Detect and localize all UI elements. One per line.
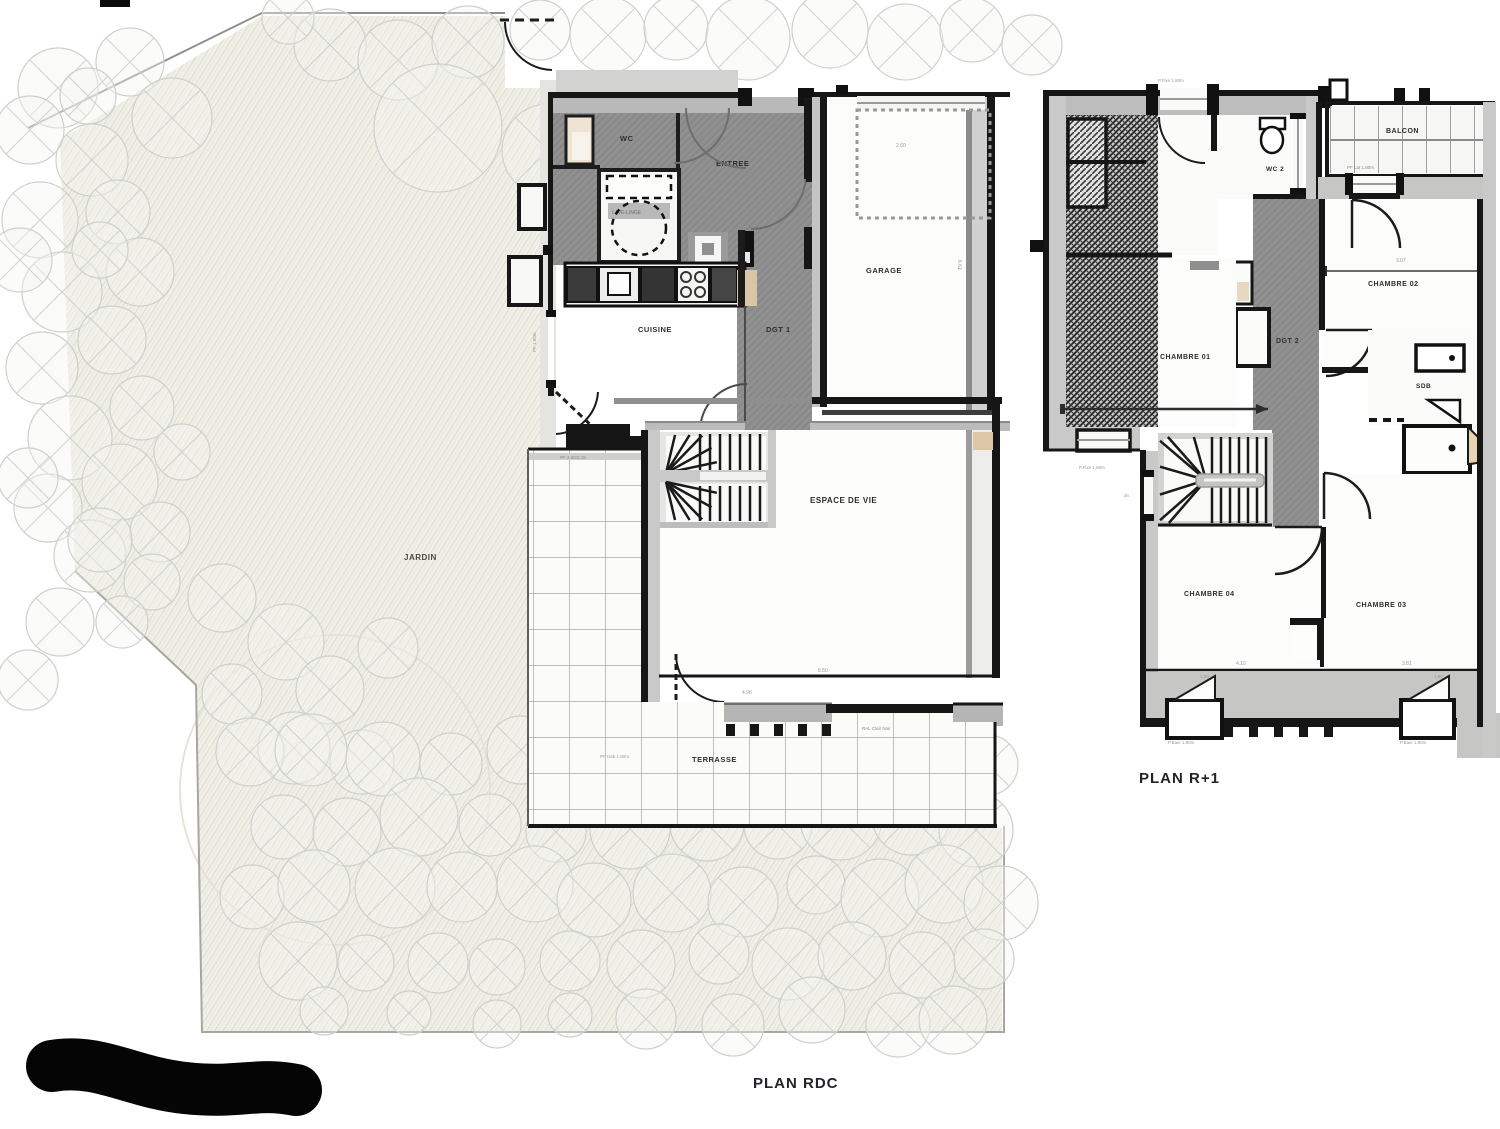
svg-text:RAL Clair Noir: RAL Clair Noir — [862, 726, 891, 731]
svg-text:4.98: 4.98 — [742, 690, 752, 696]
svg-text:PF Lat 1.80m: PF Lat 1.80m — [1347, 165, 1374, 170]
svg-text:1.90: 1.90 — [1434, 674, 1443, 679]
svg-text:JARDIN: JARDIN — [404, 553, 437, 562]
svg-text:3.07: 3.07 — [1396, 258, 1406, 264]
svg-text:P.Baie 1.80m: P.Baie 1.80m — [1168, 740, 1195, 745]
svg-text:GARAGE: GARAGE — [866, 266, 902, 275]
svg-text:CHAMBRE 03: CHAMBRE 03 — [1356, 602, 1407, 609]
svg-text:BALCON: BALCON — [1386, 128, 1419, 135]
svg-text:4.10: 4.10 — [1236, 661, 1246, 667]
svg-text:CHAMBRE 04: CHAMBRE 04 — [1184, 591, 1235, 598]
svg-text:P.Baie 1.80m: P.Baie 1.80m — [1400, 740, 1427, 745]
svg-text:3.81: 3.81 — [1402, 661, 1412, 667]
svg-text:CUISINE: CUISINE — [638, 325, 672, 334]
svg-text:8.50: 8.50 — [818, 668, 828, 674]
svg-text:2.60: 2.60 — [896, 143, 906, 149]
svg-text:ESPACE DE VIE: ESPACE DE VIE — [810, 496, 877, 505]
svg-text:PLAN RDC: PLAN RDC — [753, 1075, 839, 1092]
svg-text:SDB: SDB — [1416, 383, 1431, 390]
svg-text:6.61: 6.61 — [956, 260, 962, 270]
svg-text:P.Fixe 1.80m: P.Fixe 1.80m — [1158, 78, 1184, 83]
svg-text:PF 2.60/2.15: PF 2.60/2.15 — [560, 455, 586, 460]
svg-text:PF Hab 1.80m: PF Hab 1.80m — [600, 754, 629, 759]
svg-text:1.90: 1.90 — [1200, 674, 1209, 679]
svg-text:DGT 2: DGT 2 — [1276, 338, 1299, 345]
svg-text:WC 2: WC 2 — [1266, 166, 1284, 173]
svg-text:CHAMBRE 02: CHAMBRE 02 — [1368, 281, 1419, 288]
svg-text:DGT 1: DGT 1 — [766, 325, 791, 334]
svg-text:TERRASSE: TERRASSE — [692, 755, 737, 764]
svg-text:PF 1.80m: PF 1.80m — [532, 332, 537, 352]
svg-text:WC: WC — [620, 134, 634, 143]
svg-text:PLAN R+1: PLAN R+1 — [1139, 770, 1220, 787]
svg-text:dn: dn — [1124, 493, 1130, 498]
svg-text:P.Fixe 1.60m: P.Fixe 1.60m — [1079, 465, 1105, 470]
svg-text:CHAMBRE 01: CHAMBRE 01 — [1160, 354, 1211, 361]
